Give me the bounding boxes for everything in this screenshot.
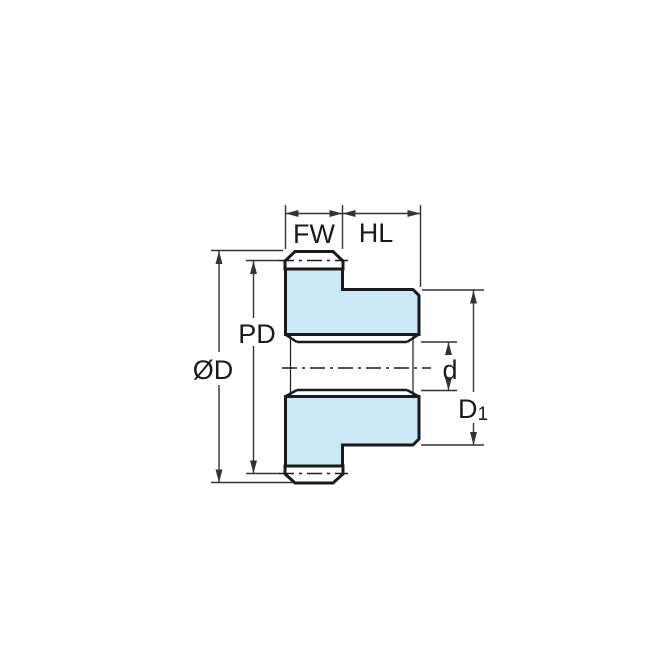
label-hub-diameter: D1 xyxy=(458,394,488,425)
label-face-width: FW xyxy=(293,219,335,249)
gear-dimension-diagram: FW HL ØD PD d D1 xyxy=(0,0,670,670)
gear-body-lower xyxy=(286,397,420,467)
label-pitch-diameter: PD xyxy=(238,319,276,349)
label-bore-diameter: d xyxy=(442,355,457,385)
gear-cross-section-drawing: FW HL ØD PD d D1 xyxy=(0,0,670,670)
bottom-tooth xyxy=(285,466,343,483)
label-outside-diameter: ØD xyxy=(193,355,234,385)
bore xyxy=(286,335,418,396)
label-hub-length: HL xyxy=(359,218,394,248)
dim-pitch-diameter xyxy=(246,261,280,474)
gear-body-upper xyxy=(286,269,420,335)
